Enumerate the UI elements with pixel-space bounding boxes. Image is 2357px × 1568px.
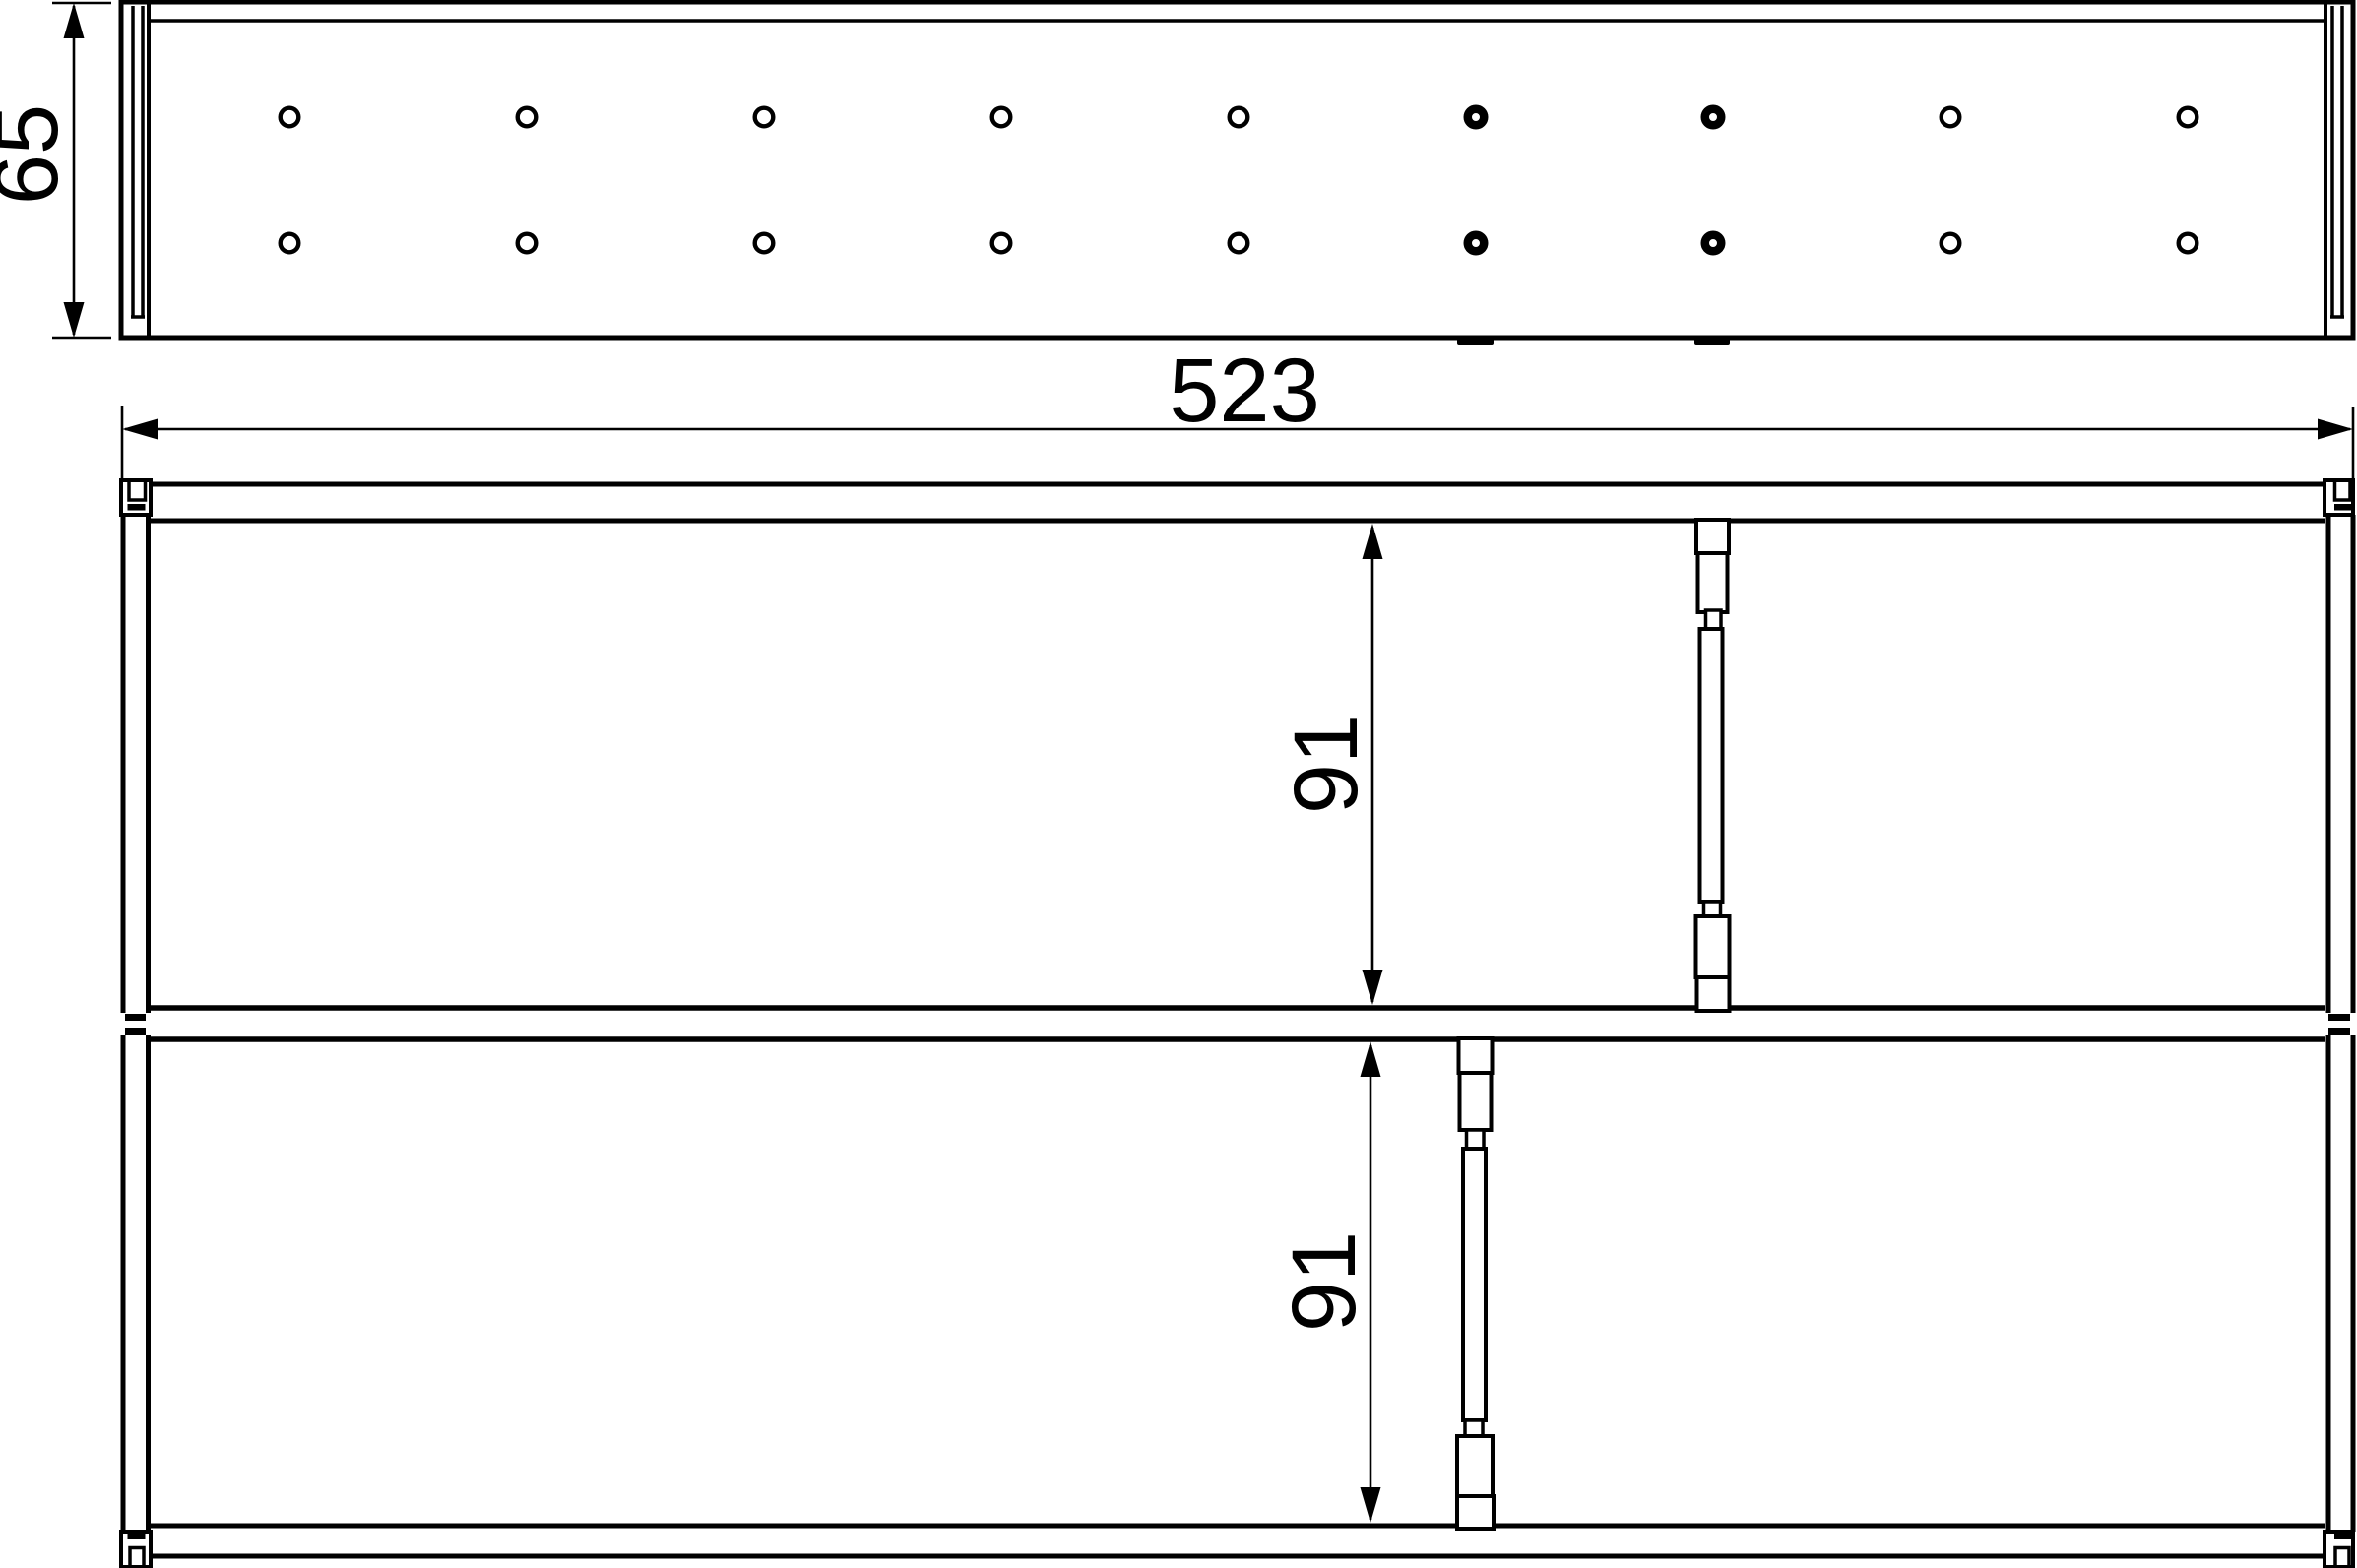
hole-marker xyxy=(755,108,774,127)
arrowhead-down xyxy=(1363,970,1383,1005)
hole-marker xyxy=(281,108,299,127)
technical-drawing: 65 523 xyxy=(0,0,2357,1568)
divider-tab-right xyxy=(1694,336,1730,345)
mounted-hole-marker xyxy=(1468,235,1485,252)
hole-marker xyxy=(518,234,537,253)
top-view-outline xyxy=(121,2,2353,338)
corner-clip-top-left xyxy=(121,480,151,515)
hole-marker xyxy=(2179,108,2198,127)
hole-marker xyxy=(1230,234,1248,253)
dimension-side-height: 65 xyxy=(0,3,111,338)
lower-divider xyxy=(1457,1038,1494,1529)
dimension-label-91-lower: 91 xyxy=(1274,1231,1374,1332)
middle-rail-left-connector xyxy=(118,1013,152,1035)
lower-divider-blade xyxy=(1463,1149,1486,1420)
arrowhead-down xyxy=(1361,1487,1381,1523)
arrowhead-up xyxy=(1363,524,1383,559)
hole-marker xyxy=(1230,108,1248,127)
arrowhead-up xyxy=(64,3,85,38)
arrowhead-down xyxy=(64,302,85,338)
mounted-hole-marker xyxy=(1468,109,1485,126)
divider-tab-left xyxy=(1457,336,1494,345)
mounted-hole-marker xyxy=(1705,235,1722,252)
middle-rail-right-connector xyxy=(2325,1013,2357,1035)
hole-marker xyxy=(992,108,1011,127)
hole-marker xyxy=(1942,108,1960,127)
top-view xyxy=(121,2,2353,345)
hole-marker xyxy=(755,234,774,253)
hole-marker xyxy=(281,234,299,253)
dimension-lower-spacing: 91 xyxy=(1274,1041,1381,1523)
arrowhead-right xyxy=(2318,419,2353,440)
hole-marker xyxy=(518,108,537,127)
hole-marker xyxy=(992,234,1011,253)
arrowhead-left xyxy=(122,419,158,440)
hole-marker xyxy=(2179,234,2198,253)
dimension-label-65: 65 xyxy=(0,104,77,205)
mounted-hole-marker xyxy=(1705,109,1722,126)
corner-clip-top-right xyxy=(2325,480,2353,515)
mounting-holes xyxy=(281,108,2198,253)
arrowhead-up xyxy=(1361,1041,1381,1077)
top-view-left-endcap xyxy=(131,2,149,338)
corner-clip-bottom-right xyxy=(2325,1532,2353,1567)
dimension-label-523: 523 xyxy=(1169,341,1320,441)
upper-divider xyxy=(1696,520,1730,1011)
front-view xyxy=(118,480,2357,1567)
top-view-right-endcap xyxy=(2325,2,2344,338)
dimension-upper-spacing: 91 xyxy=(1276,524,1383,1005)
dimension-overall-width: 523 xyxy=(122,341,2353,478)
upper-divider-blade xyxy=(1700,629,1723,902)
corner-clip-bottom-left xyxy=(121,1532,151,1567)
hole-marker xyxy=(1942,234,1960,253)
dimension-label-91-upper: 91 xyxy=(1276,714,1376,814)
